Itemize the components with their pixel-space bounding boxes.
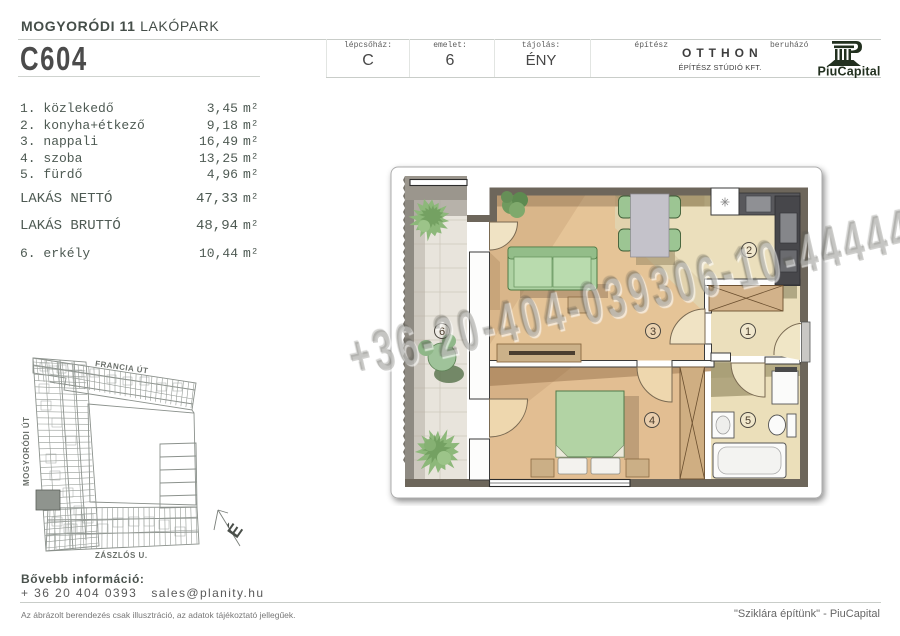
svg-text:FRANCIA ÚT: FRANCIA ÚT xyxy=(95,359,149,375)
svg-text:MOGYORÓDI ÚT: MOGYORÓDI ÚT xyxy=(22,416,31,486)
svg-text:3: 3 xyxy=(650,326,656,338)
svg-text:5: 5 xyxy=(745,415,751,427)
svg-text:4: 4 xyxy=(649,415,655,427)
svg-text:ZÁSZLÓS U.: ZÁSZLÓS U. xyxy=(95,551,148,560)
svg-text:PiuCapital: PiuCapital xyxy=(818,65,880,79)
svg-text:1: 1 xyxy=(745,326,751,338)
